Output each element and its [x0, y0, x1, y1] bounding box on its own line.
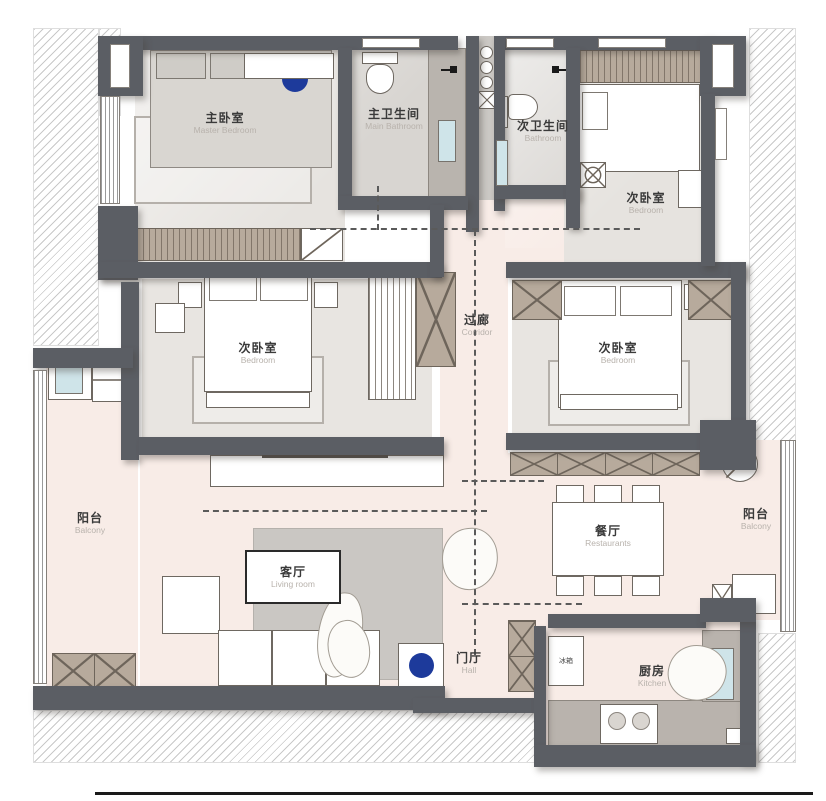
- room-label-bedroom-east: 次卧室 Bedroom: [598, 342, 637, 365]
- nightstand: [314, 282, 338, 308]
- hatch-left-strip: [33, 28, 99, 346]
- glass-bath2: [496, 140, 508, 186]
- fridge: 冰箱: [548, 636, 584, 686]
- dining-chair: [556, 576, 584, 596]
- room-label-en: Bedroom: [238, 355, 277, 365]
- room-label-en: Corridor: [462, 327, 493, 337]
- sofa-seat: [162, 576, 220, 634]
- room-label-second-bathroom: 次卫生间 Bathroom: [517, 120, 569, 143]
- room-label-en: Balcony: [75, 525, 105, 535]
- room-label-en: Bathroom: [517, 133, 569, 143]
- door-leaf: [640, 621, 688, 624]
- headboard-cushion: [156, 53, 206, 79]
- wall-corridor-left: [430, 205, 444, 277]
- dashed-horizontal-dining: [462, 480, 544, 482]
- room-label-living-room: 客厅 Living room: [247, 566, 339, 589]
- toilet-tank: [362, 52, 398, 64]
- room-label-hall: 门厅 Hall: [456, 652, 482, 675]
- room-label-en: Restaurants: [585, 538, 631, 548]
- room-label-zh: 阳台: [741, 508, 771, 521]
- room-label-zh: 主卫生间: [365, 108, 423, 121]
- glass-shower: [438, 120, 456, 162]
- burner: [632, 712, 650, 730]
- room-label-en: Kitchen: [638, 678, 666, 688]
- washer-door: [55, 366, 83, 394]
- shower-head: [450, 66, 457, 73]
- room-label-en: Bedroom: [626, 205, 665, 215]
- wall-kitchen-bottom: [534, 745, 756, 767]
- shower-head: [552, 66, 559, 73]
- room-label-zh: 过廊: [462, 314, 493, 327]
- wall-kitchen-left: [534, 626, 546, 750]
- wall-corner-balcony-right: [700, 420, 756, 470]
- wall-east-bottom: [506, 433, 708, 450]
- room-label-en: Balcony: [741, 521, 771, 531]
- dashed-bath-door: [377, 186, 379, 230]
- dashed-horizontal-hall: [462, 603, 582, 605]
- sideboard-x: [510, 452, 700, 476]
- wall-master-bath-divider: [338, 48, 352, 198]
- pipe: [480, 46, 493, 59]
- room-label-master-bedroom: 主卧室 Master Bedroom: [194, 112, 257, 135]
- pipe: [480, 61, 493, 74]
- pillow: [564, 286, 616, 316]
- wall-kitchen-right: [740, 620, 756, 762]
- blue-decor-circle: [409, 653, 434, 678]
- dining-chair: [594, 576, 622, 596]
- wall-mid-horizontal-left: [98, 262, 442, 278]
- bottom-rule: [95, 792, 813, 795]
- room-label-dining: 餐厅 Restaurants: [585, 525, 631, 548]
- living-room-label-box: 客厅 Living room: [245, 550, 341, 604]
- hatch-bottomright-block: [758, 633, 796, 763]
- closet-hanging: [368, 272, 416, 400]
- room-label-zh: 次卧室: [598, 342, 637, 355]
- room-label-en: Master Bedroom: [194, 125, 257, 135]
- floor-plan: 冰箱 主卧室 Master Be: [0, 0, 826, 801]
- wall-balcony-left-top: [33, 348, 133, 368]
- room-label-bedroom-west: 次卧室 Bedroom: [238, 342, 277, 365]
- dashed-horizontal-upper: [310, 228, 640, 230]
- shower-arm: [441, 69, 450, 71]
- tv-console: [210, 455, 444, 487]
- sofa-seat: [218, 630, 272, 686]
- window-top-ne: [598, 38, 666, 48]
- pipe: [480, 76, 493, 89]
- room-label-balcony-left: 阳台 Balcony: [75, 512, 105, 535]
- bed-bench: [206, 392, 310, 408]
- hall-kitchen-x-column: [508, 620, 536, 692]
- window-balcony-left: [33, 370, 47, 684]
- closet-x: [416, 272, 456, 367]
- room-label-en: Main Bathroom: [365, 121, 423, 131]
- wardrobe-ne: [573, 50, 701, 83]
- wall-bottom-main: [33, 686, 445, 710]
- dashed-corridor-vertical: [474, 230, 476, 655]
- room-label-zh: 厨房: [638, 665, 666, 678]
- window-topleft: [110, 44, 130, 88]
- room-label-zh: 门厅: [456, 652, 482, 665]
- toilet-second-bath: [508, 94, 538, 120]
- burner: [608, 712, 626, 730]
- window-topright: [712, 44, 734, 88]
- wall-right-ne: [701, 94, 715, 266]
- room-label-zh: 次卧室: [238, 342, 277, 355]
- pillow: [620, 286, 672, 316]
- room-label-zh: 主卧室: [194, 112, 257, 125]
- room-label-corridor: 过廊 Corridor: [462, 314, 493, 337]
- balcony-storage-x: [52, 653, 136, 689]
- toilet-main-bath: [366, 64, 394, 94]
- window-master-left: [100, 96, 120, 204]
- wall-mainbath-bottom: [338, 196, 468, 210]
- pillow: [582, 92, 608, 130]
- fridge-label: 冰箱: [549, 656, 583, 666]
- dashed-horizontal-living: [203, 510, 487, 512]
- room-label-zh: 餐厅: [585, 525, 631, 538]
- cabinet: [301, 228, 343, 261]
- room-label-bedroom-ne: 次卧室 Bedroom: [626, 192, 665, 215]
- room-label-zh: 次卧室: [626, 192, 665, 205]
- window-top-mainbath: [362, 38, 420, 48]
- room-label-zh: 阳台: [75, 512, 105, 525]
- dresser: [244, 53, 334, 79]
- wall-hall-bottom: [413, 698, 535, 713]
- window-ne-right: [715, 108, 727, 160]
- wardrobe-x: [688, 280, 734, 320]
- side-table: [155, 303, 185, 333]
- wardrobe-x: [512, 280, 562, 320]
- wall-balcony-kitchen: [700, 598, 756, 622]
- wall-living-top: [139, 437, 444, 455]
- room-label-en: Bedroom: [598, 355, 637, 365]
- wall-west-left: [121, 282, 139, 460]
- wardrobe-west: [118, 228, 301, 261]
- hatch-bottom-strip: [33, 710, 555, 763]
- bed-bench: [560, 394, 678, 410]
- room-label-balcony-right: 阳台 Balcony: [741, 508, 771, 531]
- room-label-kitchen: 厨房 Kitchen: [638, 665, 666, 688]
- room-label-en: Hall: [456, 665, 482, 675]
- room-label-main-bathroom: 主卫生间 Main Bathroom: [365, 108, 423, 131]
- window-top-bath2: [506, 38, 554, 48]
- hatch-right-strip: [749, 28, 796, 456]
- fan-box: [580, 162, 606, 188]
- window-balcony-right: [780, 440, 796, 632]
- room-label-en: Living room: [247, 579, 339, 589]
- dining-chair: [632, 576, 660, 596]
- room-label-zh: 客厅: [247, 566, 339, 579]
- room-label-zh: 次卫生间: [517, 120, 569, 133]
- wall-right-east: [731, 262, 746, 437]
